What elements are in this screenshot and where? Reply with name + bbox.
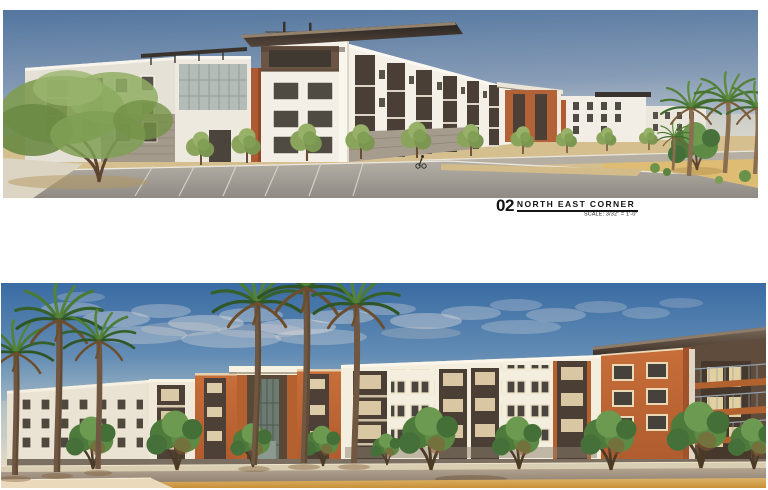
architectural-sheet: 02 NORTH EAST CORNER SCALE: 3/32" = 1'-0… <box>0 0 768 490</box>
north-east-corner-scene <box>3 10 758 198</box>
view-number: 02 <box>496 199 514 213</box>
view-scale-note: SCALE: 3/32" = 1'-0" <box>584 212 638 217</box>
view-title: NORTH EAST CORNER <box>517 199 638 209</box>
street-view-scene <box>1 283 766 488</box>
rendering-north-east-corner <box>3 10 758 198</box>
view-label: 02 NORTH EAST CORNER SCALE: 3/32" = 1'-0… <box>496 199 638 213</box>
street-and-ground <box>1 459 766 488</box>
rendering-street-view <box>1 283 766 488</box>
view-title-block: NORTH EAST CORNER SCALE: 3/32" = 1'-0" <box>517 199 638 212</box>
